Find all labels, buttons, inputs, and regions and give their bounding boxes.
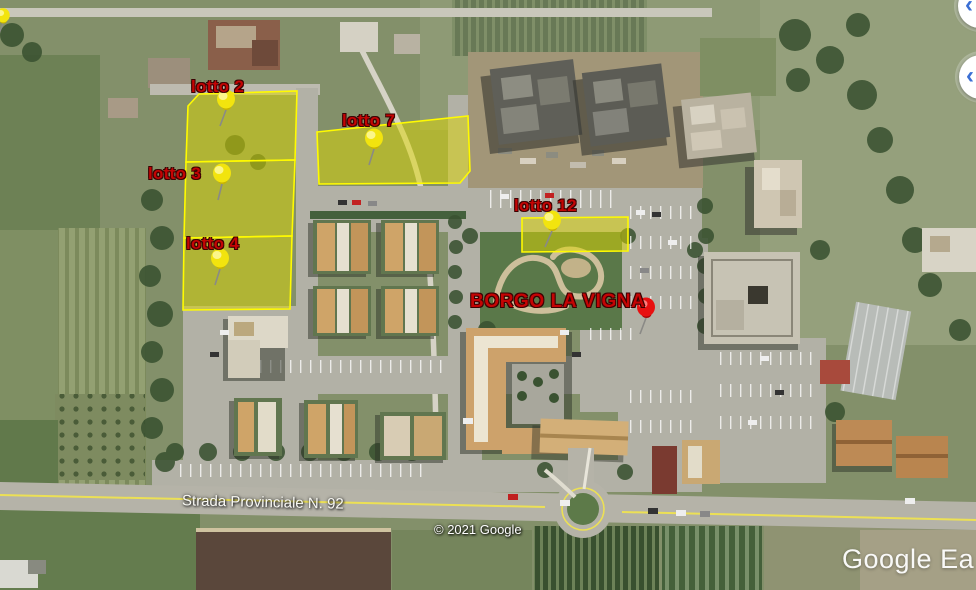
- borgo-la-vigna-label: BORGO LA VIGNA: [470, 291, 646, 313]
- lotto-3-pushpin-icon: [209, 162, 235, 202]
- lotto-12-label: lotto 12: [514, 196, 577, 216]
- lotto-2-label: lotto 2: [191, 77, 244, 97]
- lotto-7-pushpin-icon: [361, 127, 387, 167]
- chevron-left-icon: ‹: [958, 0, 973, 17]
- chevron-left-icon: ‹: [959, 64, 974, 88]
- lotto-3-label: lotto 3: [148, 164, 201, 184]
- google-earth-watermark: Google Ea: [842, 544, 974, 575]
- lotto-4-label: lotto 4: [186, 234, 239, 254]
- google-attribution: © 2021 Google: [434, 522, 522, 537]
- satellite-map-screenshot: lotto 2 lotto 3 lotto 4 lotto 7 lotto 12…: [0, 0, 976, 590]
- corner-pushpin-icon: [0, 7, 13, 37]
- lotto-7-label: lotto 7: [342, 111, 395, 131]
- road-name-label: Strada Provinciale N. 92: [182, 492, 344, 512]
